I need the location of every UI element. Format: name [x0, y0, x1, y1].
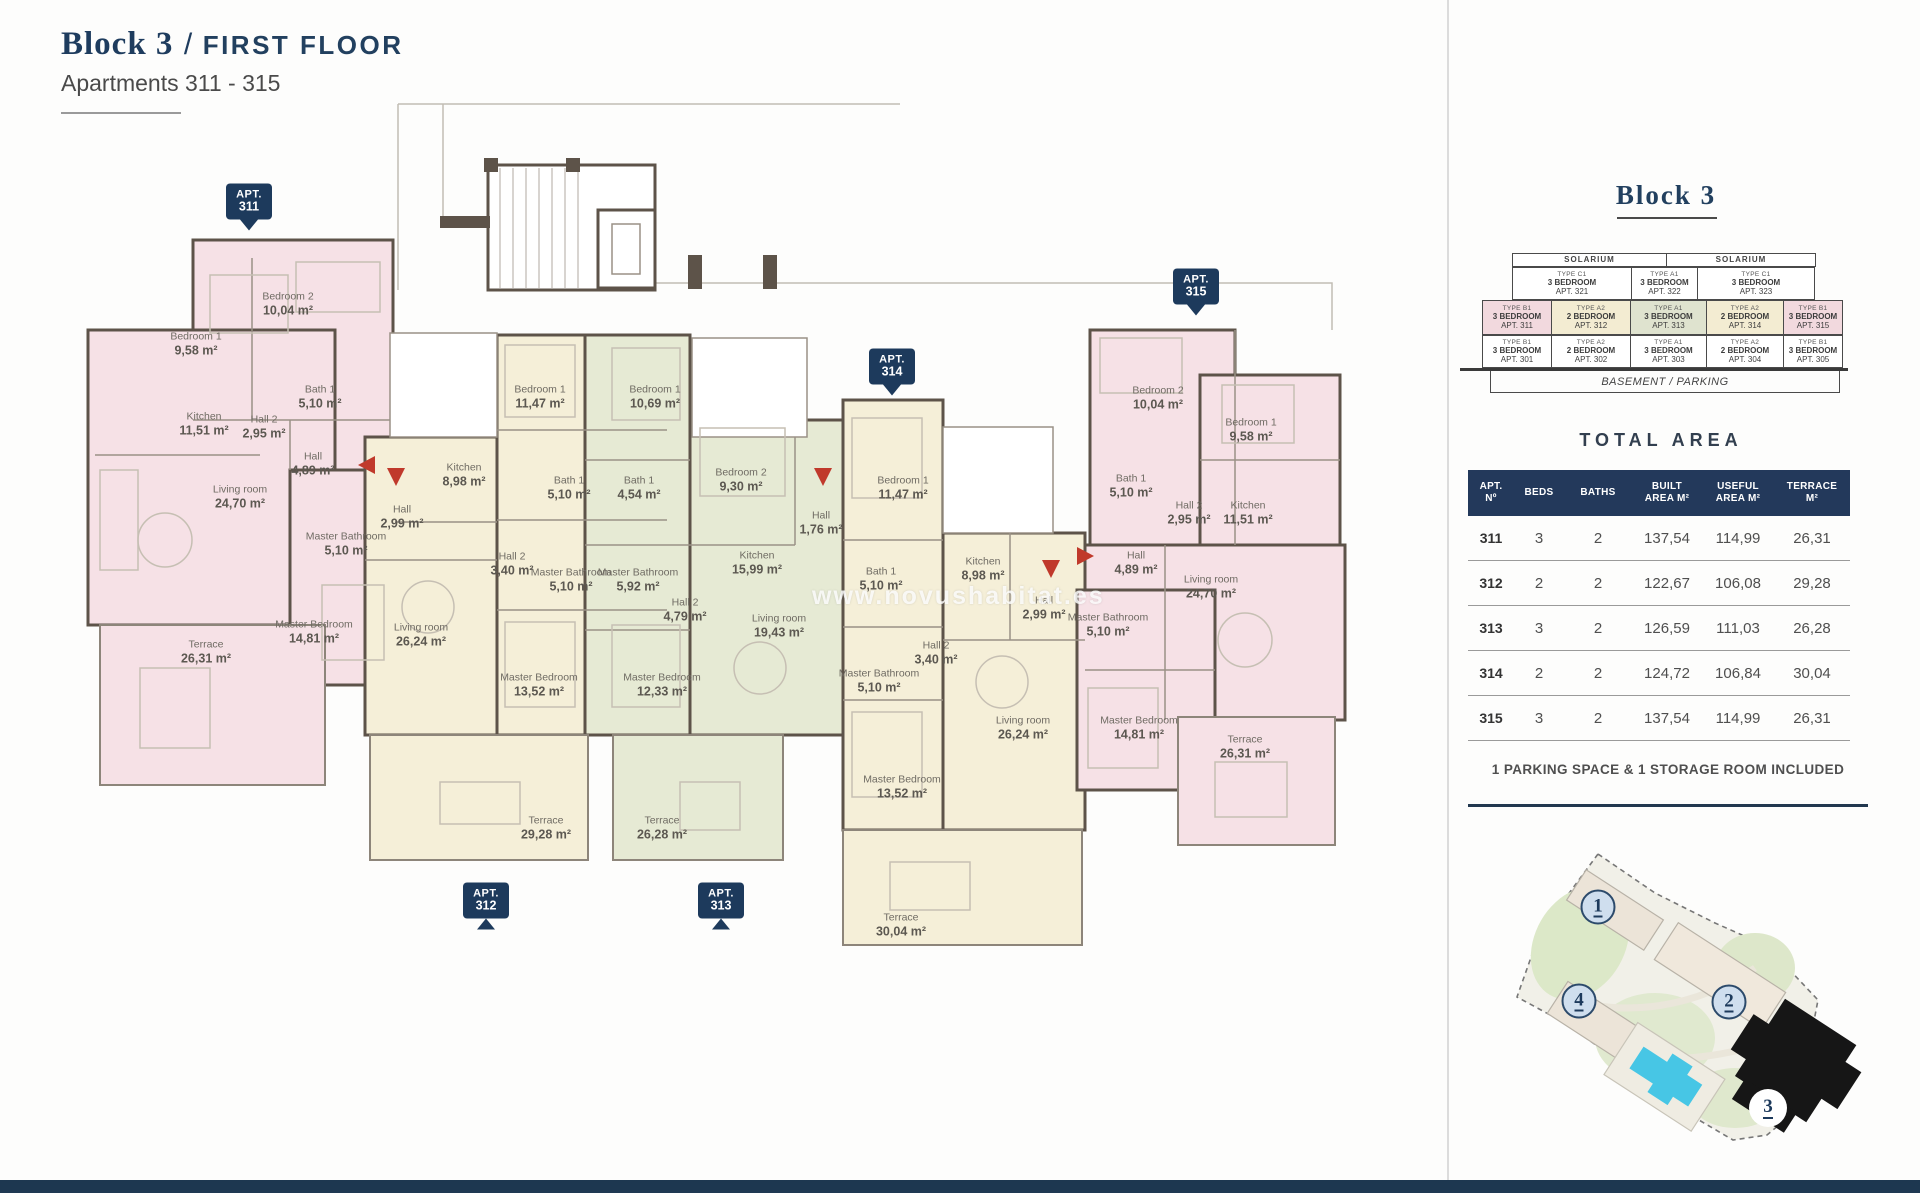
stack-cell-apt: APT. 312 — [1575, 321, 1607, 330]
total-area-apt-value: 314 — [1468, 651, 1514, 695]
stack-cell-apt: APT. 321 — [1556, 287, 1588, 296]
total-area-built-value: 137,54 — [1632, 516, 1702, 560]
basement-label: BASEMENT / PARKING — [1490, 371, 1840, 393]
total-area-header-row: APT. NºBEDSBATHSBUILT AREA M²USEFUL AREA… — [1468, 470, 1850, 516]
total-area-useful-value: 106,08 — [1702, 561, 1774, 605]
stack-cell-323: TYPE C13 BEDROOMAPT. 323 — [1697, 267, 1815, 300]
stack-cell-apt: APT. 315 — [1797, 321, 1829, 330]
stack-cell-beds: 3 BEDROOM — [1640, 278, 1688, 287]
total-area-row-315: 31532137,54114,9926,31 — [1468, 696, 1850, 741]
badge-pointer — [1187, 305, 1205, 316]
badge-box: APT.315 — [1173, 269, 1219, 305]
note-underline — [1468, 804, 1868, 807]
site-map-marker-number: 4 — [1574, 990, 1584, 1012]
total-area-useful-value: 111,03 — [1702, 606, 1774, 650]
total-area-useful-value: 106,84 — [1702, 651, 1774, 695]
stack-cell-apt: APT. 305 — [1797, 355, 1829, 364]
total-area-apt-value: 312 — [1468, 561, 1514, 605]
total-area-beds-value: 2 — [1514, 561, 1564, 605]
badge-box: APT.314 — [869, 349, 915, 385]
stack-cell-314: TYPE A22 BEDROOMAPT. 314 — [1706, 300, 1784, 335]
total-area-header-cell: APT. Nº — [1468, 470, 1514, 516]
total-area-header-cell: TERRACE M² — [1774, 470, 1850, 516]
apartment-badge-315: APT.315 — [1173, 269, 1219, 316]
parking-storage-note: 1 PARKING SPACE & 1 STORAGE ROOM INCLUDE… — [1468, 762, 1868, 777]
badge-box: APT.313 — [698, 883, 744, 919]
total-area-header-cell: USEFUL AREA M² — [1702, 470, 1774, 516]
stack-row-solarium: SOLARIUMSOLARIUM — [1513, 253, 1818, 267]
total-area-row-312: 31222122,67106,0829,28 — [1468, 561, 1850, 606]
badge-number: 312 — [463, 900, 509, 914]
stack-cell-beds: 2 BEDROOM — [1721, 312, 1769, 321]
total-area-baths-value: 2 — [1564, 516, 1632, 560]
total-area-terrace-value: 26,28 — [1774, 606, 1850, 650]
total-area-table: APT. NºBEDSBATHSBUILT AREA M²USEFUL AREA… — [1468, 470, 1850, 741]
page-title-separator: / — [178, 28, 198, 61]
site-map-marker-number: 3 — [1763, 1097, 1773, 1119]
stack-cell-type: TYPE A1 — [1654, 305, 1682, 312]
total-area-apt-value: 315 — [1468, 696, 1514, 740]
total-area-terrace-value: 26,31 — [1774, 696, 1850, 740]
total-area-built-value: 126,59 — [1632, 606, 1702, 650]
badge-number: 314 — [869, 366, 915, 380]
stack-cell-322: TYPE A13 BEDROOMAPT. 322 — [1631, 267, 1698, 300]
stack-cell-type: TYPE C1 — [1741, 271, 1770, 278]
bottom-accent-bar — [0, 1180, 1920, 1193]
apartment-badge-312: APT.312 — [463, 883, 509, 930]
total-area-beds-value: 3 — [1514, 606, 1564, 650]
site-map-marker-4: 4 — [1562, 984, 1597, 1019]
stack-row-third-floor: TYPE C13 BEDROOMAPT. 321TYPE A13 BEDROOM… — [1513, 267, 1818, 300]
total-area-baths-value: 2 — [1564, 561, 1632, 605]
stack-cell-type: TYPE B1 — [1799, 305, 1828, 312]
site-map-marker-number: 1 — [1593, 896, 1603, 918]
total-area-row-313: 31332126,59111,0326,28 — [1468, 606, 1850, 651]
badge-box: APT.311 — [226, 184, 272, 220]
stack-cell-beds: 3 BEDROOM — [1732, 278, 1780, 287]
badge-number: 313 — [698, 900, 744, 914]
stair-core — [440, 158, 777, 290]
total-area-header-cell: BATHS — [1564, 470, 1632, 516]
total-area-built-value: 122,67 — [1632, 561, 1702, 605]
total-area-built-value: 124,72 — [1632, 651, 1702, 695]
stack-cell-302: TYPE A22 BEDROOMAPT. 302 — [1551, 335, 1631, 368]
stack-cell-type: TYPE A2 — [1577, 305, 1605, 312]
stack-cell-solarium: SOLARIUM — [1512, 253, 1667, 267]
stack-cell-315: TYPE B13 BEDROOMAPT. 315 — [1783, 300, 1843, 335]
stack-cell-beds: 2 BEDROOM — [1567, 312, 1615, 321]
total-area-row-311: 31132137,54114,9926,31 — [1468, 516, 1850, 561]
total-area-row-314: 31422124,72106,8430,04 — [1468, 651, 1850, 696]
stack-cell-beds: 3 BEDROOM — [1493, 346, 1541, 355]
stack-cell-type: TYPE B1 — [1503, 305, 1532, 312]
stack-cell-beds: 3 BEDROOM — [1789, 312, 1837, 321]
sidebar-block-underline — [1617, 217, 1717, 219]
apartment-badge-311: APT.311 — [226, 184, 272, 231]
stack-cell-beds: 3 BEDROOM — [1493, 312, 1541, 321]
apartment-badge-313: APT.313 — [698, 883, 744, 930]
site-map-marker-1: 1 — [1581, 890, 1616, 925]
badge-pointer — [477, 919, 495, 930]
stack-cell-beds: 3 BEDROOM — [1644, 346, 1692, 355]
badge-pointer — [712, 919, 730, 930]
stack-cell-apt: APT. 314 — [1729, 321, 1761, 330]
badge-pointer — [883, 385, 901, 396]
total-area-baths-value: 2 — [1564, 606, 1632, 650]
total-area-terrace-value: 30,04 — [1774, 651, 1850, 695]
site-map-marker-3: 3 — [1749, 1089, 1787, 1127]
stack-cell-type: TYPE A1 — [1654, 339, 1682, 346]
sidebar-block-title: Block 3 — [1466, 180, 1866, 211]
stack-cell-311: TYPE B13 BEDROOMAPT. 311 — [1482, 300, 1552, 335]
total-area-apt-value: 311 — [1468, 516, 1514, 560]
badge-pointer — [240, 220, 258, 231]
page-title-floor: FIRST FLOOR — [203, 30, 404, 60]
total-area-terrace-value: 29,28 — [1774, 561, 1850, 605]
stack-cell-type: TYPE A2 — [1577, 339, 1605, 346]
stack-cell-apt: APT. 303 — [1652, 355, 1684, 364]
stack-cell-apt: APT. 304 — [1729, 355, 1761, 364]
total-area-beds-value: 3 — [1514, 516, 1564, 560]
total-area-baths-value: 2 — [1564, 696, 1632, 740]
stack-cell-304: TYPE A22 BEDROOMAPT. 304 — [1706, 335, 1784, 368]
stack-cell-321: TYPE C13 BEDROOMAPT. 321 — [1512, 267, 1632, 300]
stack-cell-beds: 2 BEDROOM — [1567, 346, 1615, 355]
stack-cell-type: TYPE B1 — [1503, 339, 1532, 346]
page-subtitle: Apartments 311 - 315 — [61, 70, 280, 97]
floor-plan-page: Bedroom 210,04 m²Bedroom 19,58 m²Kitchen… — [0, 0, 1920, 1200]
apartment-311-region — [88, 240, 393, 685]
stack-row-first-floor: TYPE B13 BEDROOMAPT. 311TYPE A22 BEDROOM… — [1483, 300, 1848, 335]
stack-cell-beds: 2 BEDROOM — [1721, 346, 1769, 355]
total-area-beds-value: 3 — [1514, 696, 1564, 740]
badge-number: 311 — [226, 201, 272, 215]
stack-cell-apt: APT. 302 — [1575, 355, 1607, 364]
apartment-badge-314: APT.314 — [869, 349, 915, 396]
total-area-header-cell: BEDS — [1514, 470, 1564, 516]
stack-cell-solarium: SOLARIUM — [1666, 253, 1816, 267]
badge-number: 315 — [1173, 286, 1219, 300]
stack-cell-type: TYPE B1 — [1799, 339, 1828, 346]
stack-cell-apt: APT. 313 — [1652, 321, 1684, 330]
total-area-title: TOTAL AREA — [1468, 430, 1854, 451]
stack-cell-303: TYPE A13 BEDROOMAPT. 303 — [1630, 335, 1707, 368]
badge-box: APT.312 — [463, 883, 509, 919]
stack-cell-type: TYPE A1 — [1650, 271, 1678, 278]
site-map-marker-2: 2 — [1712, 985, 1747, 1020]
stack-cell-beds: 3 BEDROOM — [1548, 278, 1596, 287]
stack-row-ground-floor: TYPE B13 BEDROOMAPT. 301TYPE A22 BEDROOM… — [1483, 335, 1848, 368]
stack-cell-313: TYPE A13 BEDROOMAPT. 313 — [1630, 300, 1707, 335]
page-title-block: Block 3 — [61, 26, 173, 62]
stack-cell-305: TYPE B13 BEDROOMAPT. 305 — [1783, 335, 1843, 368]
site-map-marker-number: 2 — [1724, 991, 1734, 1013]
stack-cell-apt: APT. 301 — [1501, 355, 1533, 364]
total-area-header-cell: BUILT AREA M² — [1632, 470, 1702, 516]
page-title: Block 3 / FIRST FLOOR — [61, 26, 404, 63]
stack-cell-type: TYPE A2 — [1731, 305, 1759, 312]
total-area-beds-value: 2 — [1514, 651, 1564, 695]
stack-cell-312: TYPE A22 BEDROOMAPT. 312 — [1551, 300, 1631, 335]
total-area-apt-value: 313 — [1468, 606, 1514, 650]
stack-cell-apt: APT. 323 — [1740, 287, 1772, 296]
total-area-built-value: 137,54 — [1632, 696, 1702, 740]
total-area-useful-value: 114,99 — [1702, 516, 1774, 560]
stack-cell-apt: APT. 322 — [1648, 287, 1680, 296]
stack-cell-301: TYPE B13 BEDROOMAPT. 301 — [1482, 335, 1552, 368]
sidebar-divider — [1447, 0, 1449, 1180]
total-area-terrace-value: 26,31 — [1774, 516, 1850, 560]
stack-cell-apt: APT. 311 — [1501, 321, 1533, 330]
stack-cell-type: TYPE C1 — [1557, 271, 1586, 278]
title-underline — [61, 112, 181, 114]
stack-cell-beds: 3 BEDROOM — [1789, 346, 1837, 355]
stack-cell-type: TYPE A2 — [1731, 339, 1759, 346]
total-area-baths-value: 2 — [1564, 651, 1632, 695]
total-area-useful-value: 114,99 — [1702, 696, 1774, 740]
stack-cell-beds: 3 BEDROOM — [1644, 312, 1692, 321]
